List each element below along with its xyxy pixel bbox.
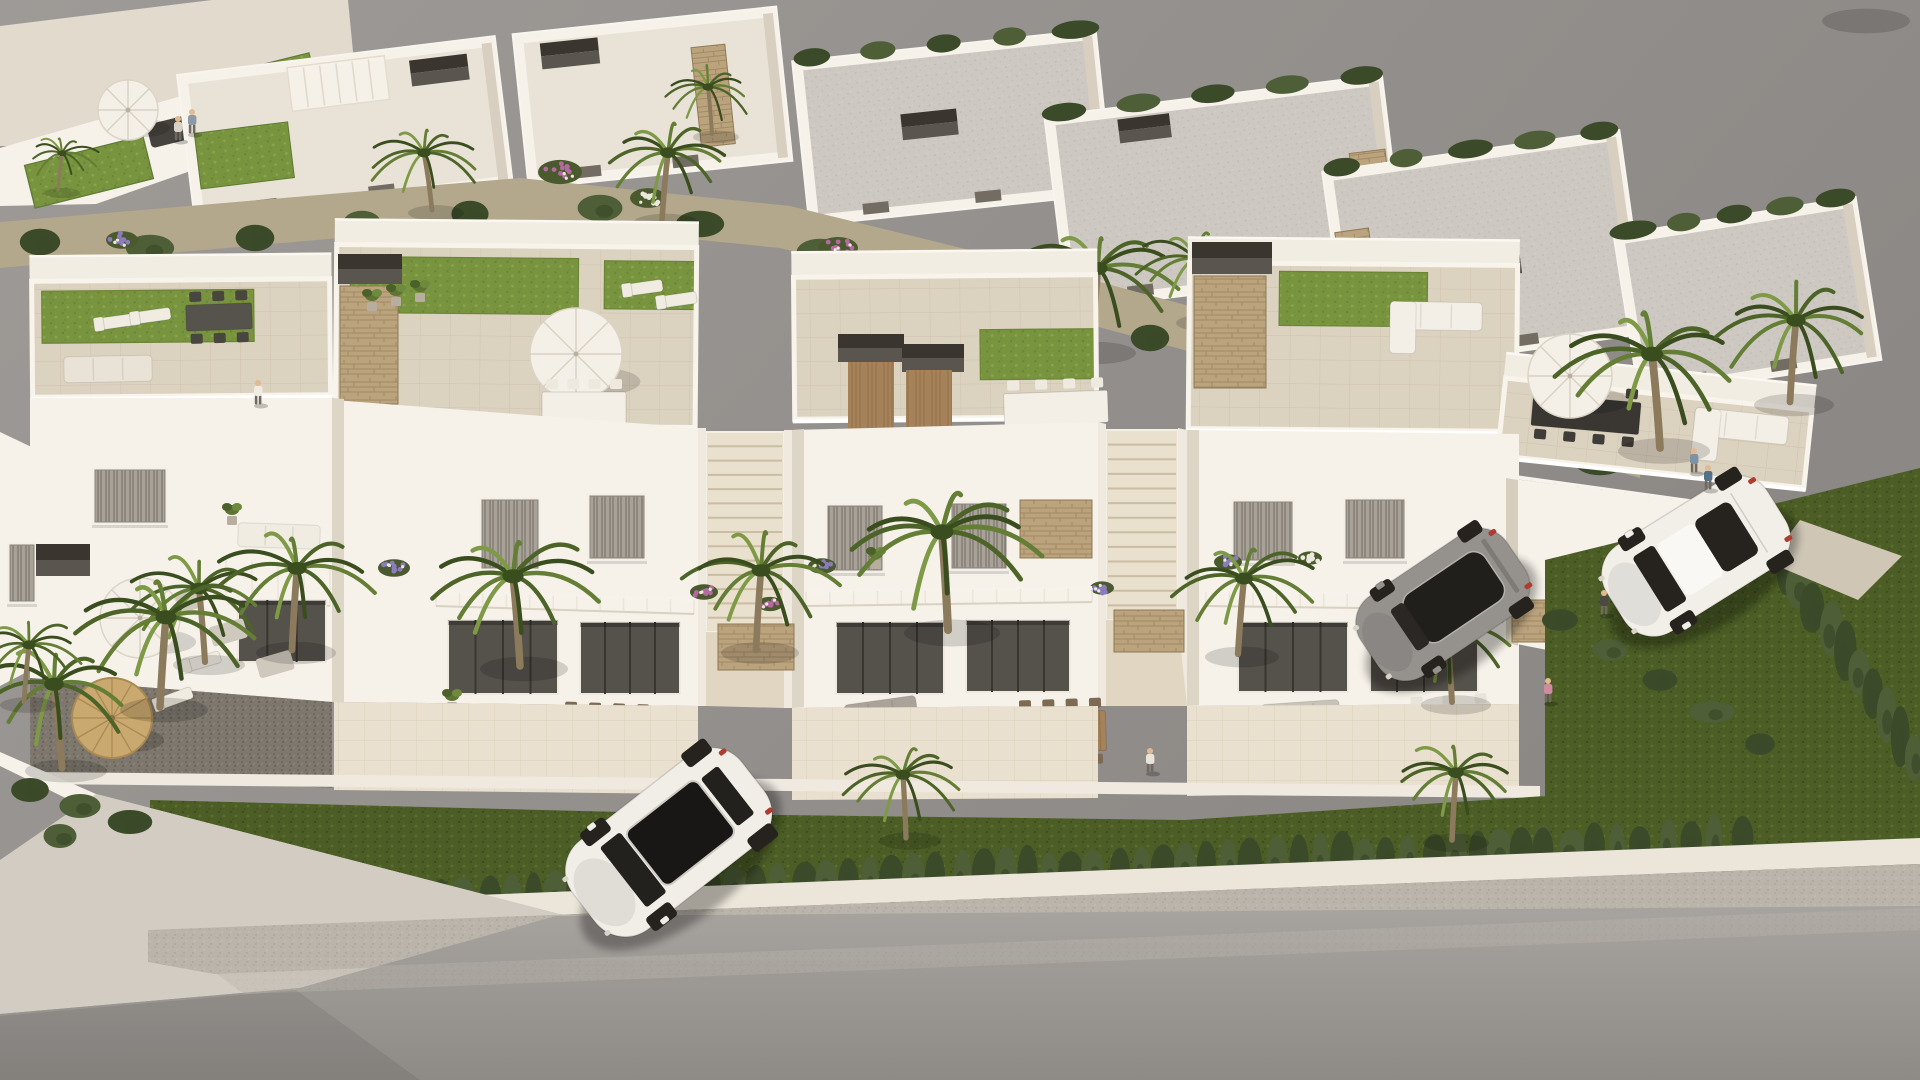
unit1-roof-dining <box>185 290 253 344</box>
unit1-window <box>92 467 168 528</box>
facade-shade-3 <box>1187 430 1199 706</box>
canyon2-wall-l <box>1098 422 1106 706</box>
canyon-stairs-2 <box>1106 430 1178 620</box>
unit4-stair-box <box>1192 242 1272 274</box>
unit4-window-b <box>1343 497 1407 564</box>
unit2-doors-b <box>580 622 680 694</box>
unit3-door-cap-b <box>902 344 964 372</box>
development-aerial-render <box>0 0 1920 1080</box>
unit2-doors-a <box>448 620 558 694</box>
unit3-door-a <box>848 362 894 436</box>
unit4-window-a <box>1231 499 1295 566</box>
flower-cluster <box>690 584 718 599</box>
unit3-door-cap-a <box>838 334 904 362</box>
canyon2-stone <box>1114 610 1184 652</box>
architectural-render-page <box>0 0 1920 1080</box>
unit2-stair-box <box>338 254 402 284</box>
unit4-terrace <box>1187 704 1519 796</box>
unit2-window-b <box>587 493 647 564</box>
unit1-roof-sofa <box>64 355 152 383</box>
unit1-bbq <box>36 544 90 576</box>
unit2-balcony-flowers <box>378 559 410 577</box>
left-wing-window <box>7 542 37 607</box>
unit4-stair-tower <box>1194 276 1266 388</box>
flower-cluster <box>538 160 582 184</box>
